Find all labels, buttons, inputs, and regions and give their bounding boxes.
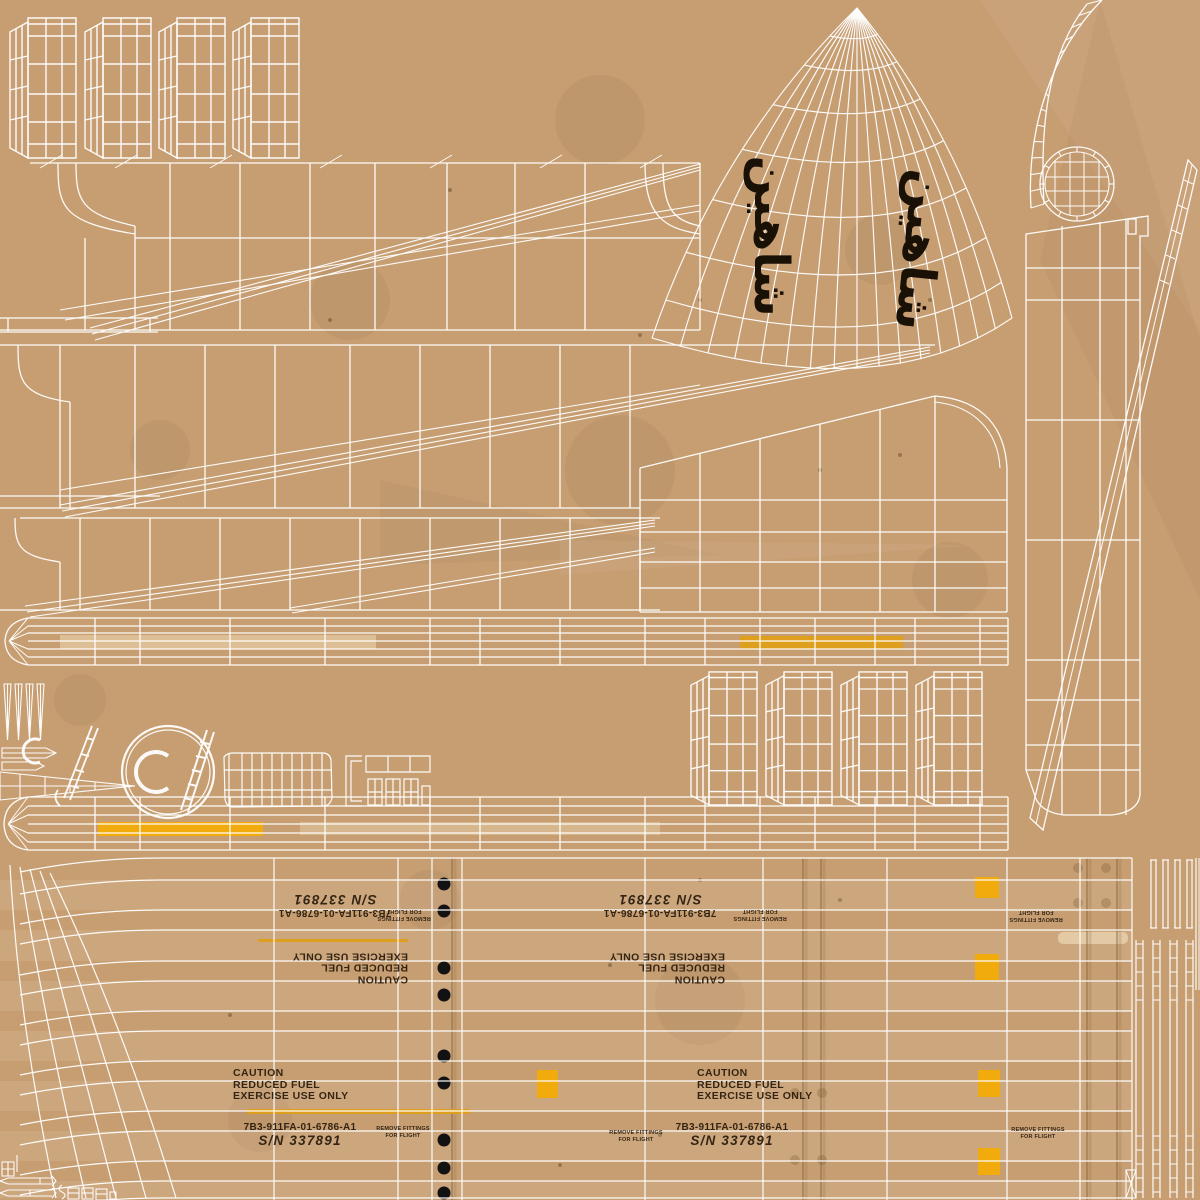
small-bracket-parts [346, 756, 430, 806]
remove-fittings-stencil: REMOVE FITTINGS FOR FLIGHT [358, 1126, 448, 1139]
caution-stencil: CAUTION REDUCED FUEL EXERCISE USE ONLY [697, 1068, 813, 1103]
right-ladder-strips [1126, 940, 1193, 1198]
ring-stack-group-top [10, 18, 299, 158]
serial-number-stencil: S/N 337891 [570, 892, 750, 907]
remove-fittings-stencil: REMOVE FITTINGS FOR FLIGHT [715, 908, 805, 921]
remove-fittings-stencil: REMOVE FITTINGS FOR FLIGHT [991, 909, 1081, 922]
roundel-emblem [23, 726, 214, 818]
remove-fittings-stencil: REMOVE FITTINGS FOR FLIGHT [591, 1130, 681, 1143]
rivet-dot [438, 1162, 451, 1175]
nose-cone-wireframe [652, 8, 1012, 369]
yellow-marker-square [978, 1070, 1000, 1097]
rivet-dot [438, 1077, 451, 1090]
right-comb-strips [1150, 858, 1199, 990]
yellow-marker-square [537, 1070, 558, 1098]
caution-stencil: CAUTION REDUCED FUEL EXERCISE USE ONLY [575, 950, 725, 985]
remove-fittings-stencil: REMOVE FITTINGS FOR FLIGHT [359, 908, 449, 921]
texture-atlas-canvas: شاهین شاهین 7B3-911FA-01-6786-A1 S/N 337… [0, 0, 1200, 1200]
nose-brand-text: شاهین [741, 151, 801, 321]
remove-fittings-stencil: REMOVE FITTINGS FOR FLIGHT [993, 1127, 1083, 1140]
ring-stack-group-mid [691, 672, 982, 805]
serial-number-stencil: S/N 337891 [245, 892, 425, 907]
fuselage-band-c [0, 518, 660, 617]
paint-markings-layer [0, 0, 1200, 1200]
yellow-marker-square [975, 954, 999, 980]
mesh-lines-layer [0, 0, 1199, 1200]
wireframe-layer [0, 0, 1200, 1200]
rivet-dot [438, 989, 451, 1002]
caution-stencil: CAUTION REDUCED FUEL EXERCISE USE ONLY [233, 1068, 349, 1103]
bottom-panel-shading [0, 635, 1132, 1198]
barrel-part [224, 753, 332, 807]
cylinder-strip-2 [4, 797, 1008, 850]
caution-stencil: CAUTION REDUCED FUEL EXERCISE USE ONLY [258, 950, 408, 985]
rivet-dot [438, 962, 451, 975]
cylinder-strip-1 [5, 618, 1008, 665]
